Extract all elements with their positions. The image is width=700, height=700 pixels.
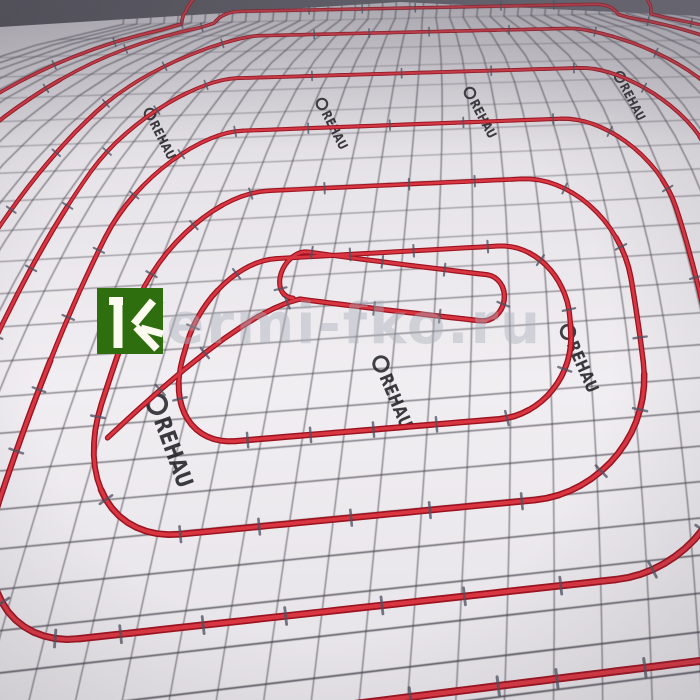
- shop-logo: [97, 288, 163, 354]
- top-shade-overlay: [0, 0, 700, 150]
- photo-canvas: REHAUREHAUREHAUREHAUREHAUREHAUREHAU Kerm…: [0, 0, 700, 700]
- product-photo: REHAUREHAUREHAUREHAUREHAUREHAUREHAU Kerm…: [0, 0, 700, 700]
- watermark-text: Kermi-fko.ru: [122, 292, 542, 357]
